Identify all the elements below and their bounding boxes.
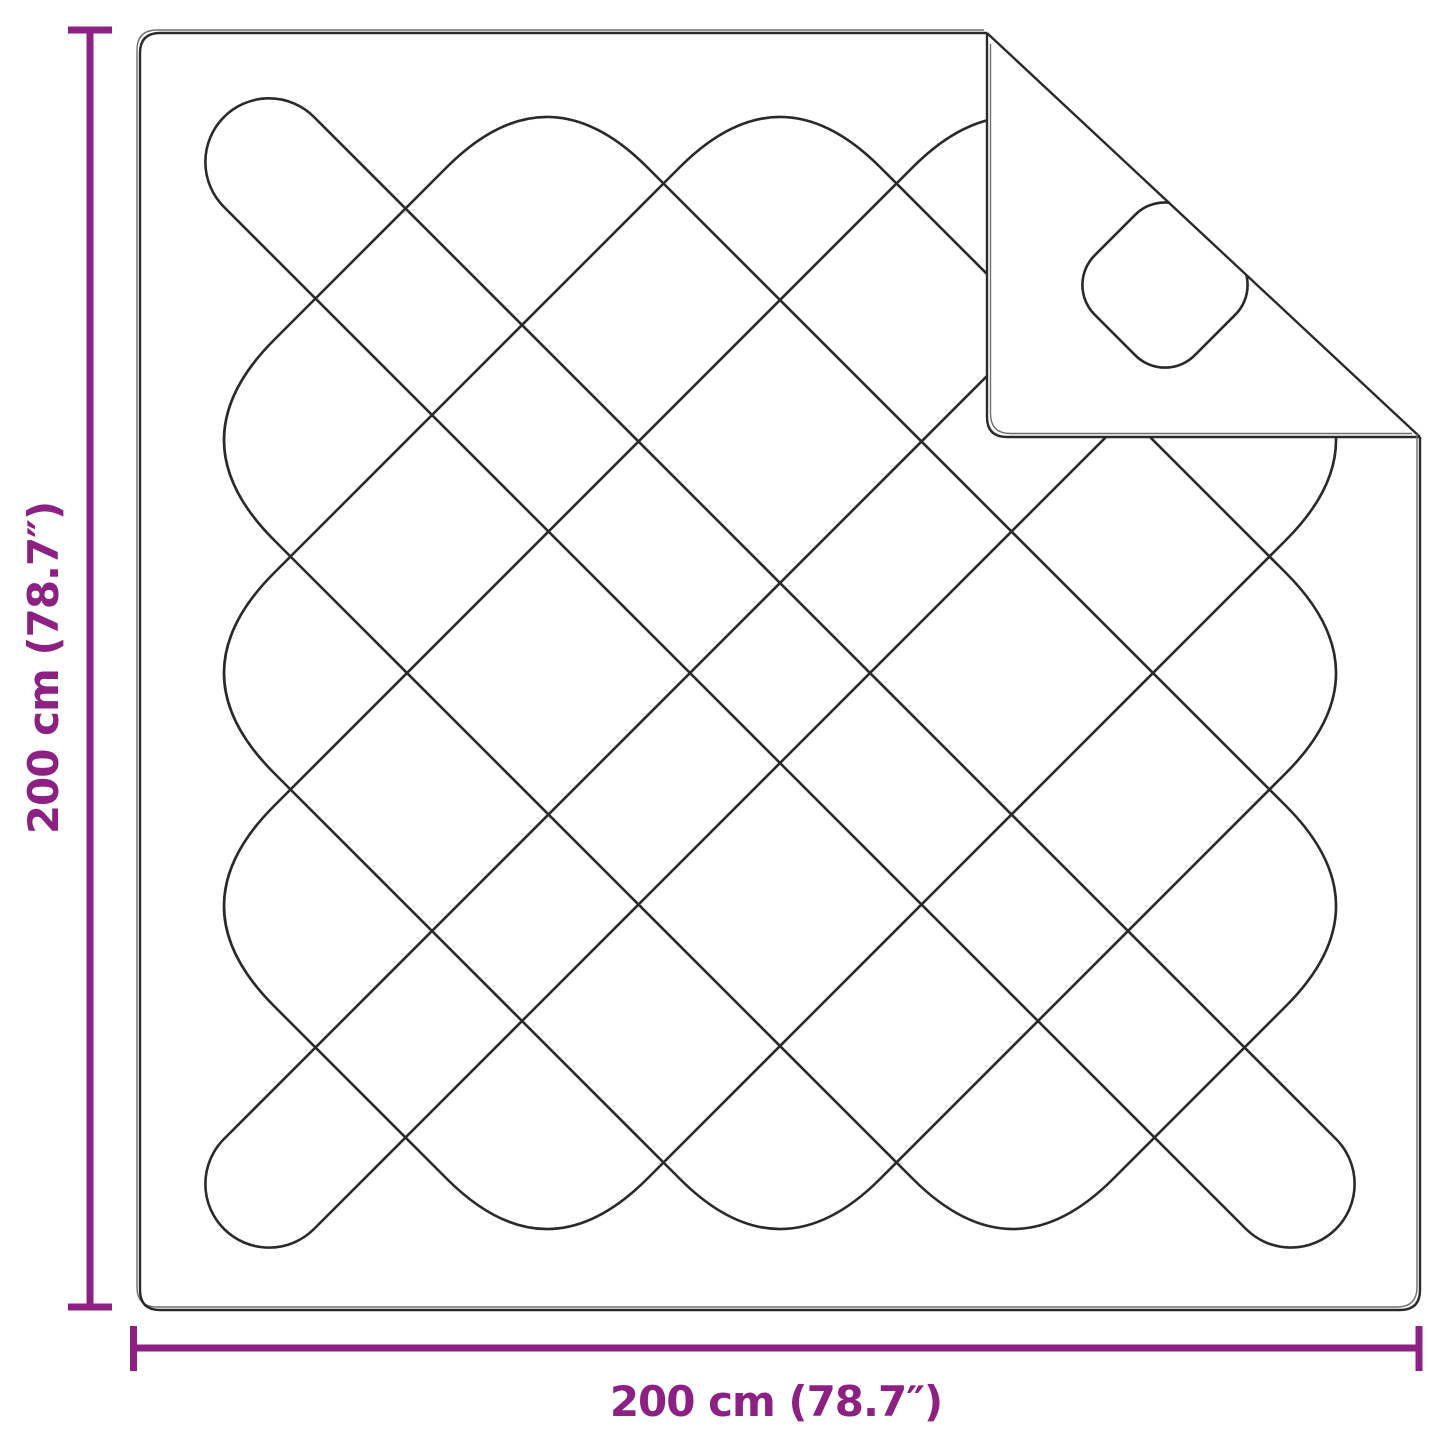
dimension-lines [68, 30, 1419, 1371]
product-dimension-figure: 200 cm (78.7″) 200 cm (78.7″) [0, 0, 1445, 1445]
blanket-outline-ghost [137, 30, 1417, 1307]
height-dimension-label: 200 cm (78.7″) [19, 502, 68, 834]
blanket-outline [140, 33, 1420, 1310]
blanket-dimension-diagram: 200 cm (78.7″) 200 cm (78.7″) [0, 0, 1445, 1445]
dimension-labels: 200 cm (78.7″) 200 cm (78.7″) [19, 502, 942, 1426]
width-dimension-label: 200 cm (78.7″) [610, 1377, 942, 1426]
